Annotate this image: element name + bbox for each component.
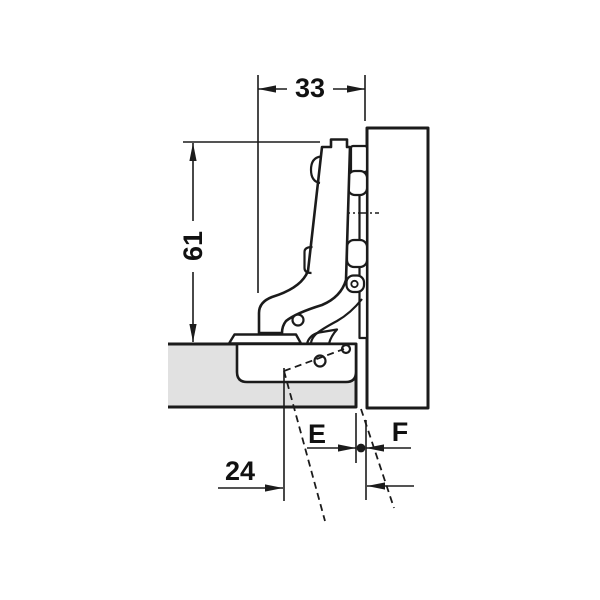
- cabinet-side-panel: [367, 128, 428, 408]
- hinge-drawing-canvas: 33 61 24 E F: [0, 0, 600, 600]
- cabinet-side-panel-body: [367, 128, 428, 408]
- hinge-technical-drawing: 33 61 24 E F: [0, 0, 600, 600]
- arrow-61-top: [189, 143, 196, 161]
- mounting-plate-lower-cam: [347, 240, 367, 267]
- mounting-plate-upper-cam: [348, 171, 367, 195]
- hinge-cup: [229, 330, 356, 383]
- arrow-24: [265, 484, 283, 491]
- dimension-e-f: E F: [307, 413, 414, 500]
- hinge-arm-body: [259, 140, 350, 334]
- arrow-61-bottom: [189, 324, 196, 342]
- dim-61-label: 61: [178, 231, 208, 261]
- dim-24-label: 24: [225, 456, 255, 486]
- arrow-e: [338, 444, 356, 451]
- arrow-33-left: [258, 85, 276, 92]
- pivot-axis-dot: [357, 444, 366, 453]
- mounting-plate-upper-wing: [351, 146, 367, 172]
- arrow-33-right: [347, 85, 365, 92]
- dim-f-label: F: [392, 417, 409, 447]
- cup-cavity: [237, 344, 356, 382]
- knuckle-screw-hole: [351, 281, 357, 287]
- dim-e-label: E: [308, 419, 326, 449]
- dim-33-label: 33: [295, 73, 325, 103]
- arm-pivot-hole: [293, 315, 304, 326]
- dimension-24: 24: [218, 456, 283, 492]
- hinge-arm: [259, 140, 350, 334]
- arrow-f: [366, 444, 384, 451]
- cup-flange: [229, 335, 301, 344]
- arrow-swing: [367, 482, 385, 489]
